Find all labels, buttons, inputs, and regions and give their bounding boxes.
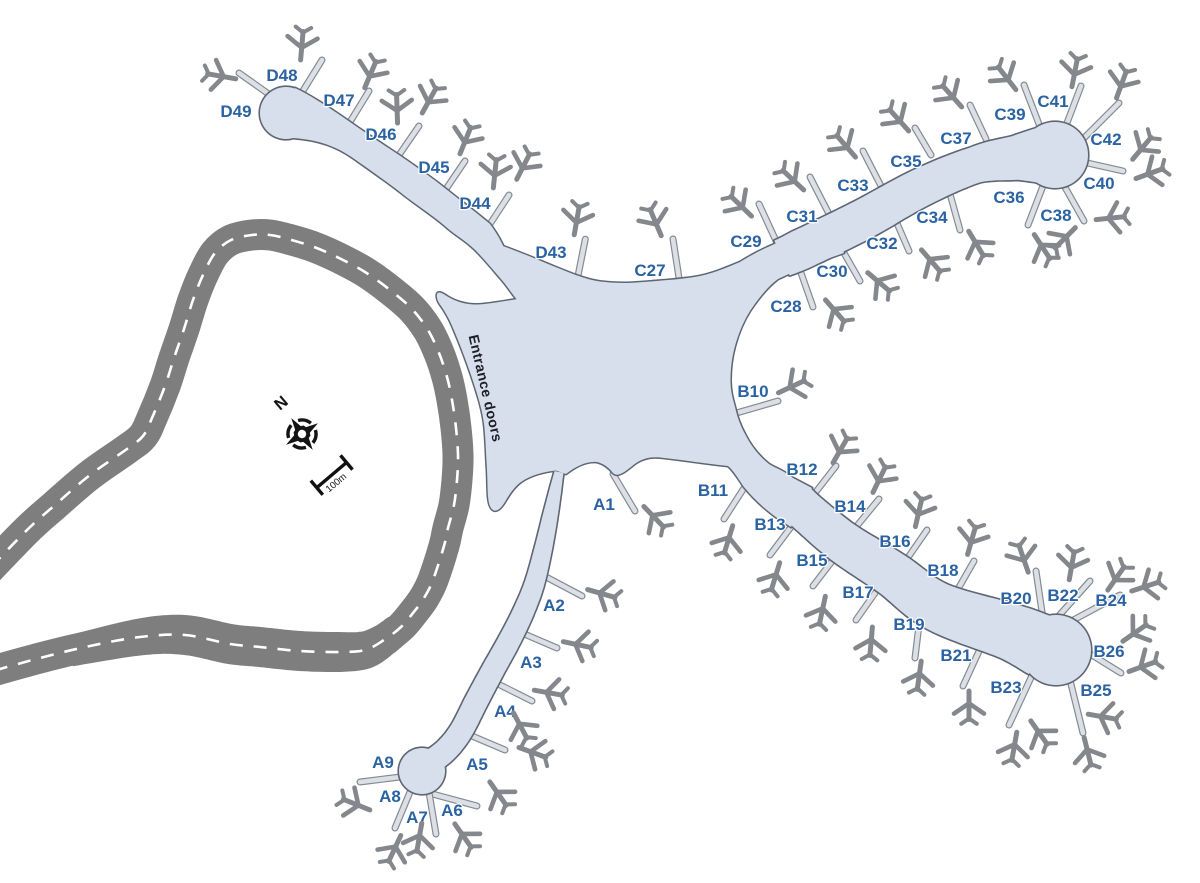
svg-text:D48: D48 (266, 66, 297, 85)
svg-text:B11: B11 (698, 481, 728, 500)
svg-text:D46: D46 (365, 125, 396, 144)
svg-text:B20: B20 (1000, 589, 1031, 608)
svg-text:B24: B24 (1095, 591, 1127, 610)
svg-text:B17: B17 (842, 583, 873, 602)
svg-text:C32: C32 (866, 234, 897, 253)
svg-text:A1: A1 (593, 495, 615, 514)
svg-text:A2: A2 (543, 596, 565, 615)
svg-text:D47: D47 (323, 91, 354, 110)
svg-text:A6: A6 (441, 801, 463, 820)
svg-text:C35: C35 (890, 152, 921, 171)
svg-text:B13: B13 (754, 515, 785, 534)
svg-text:A8: A8 (379, 787, 401, 806)
svg-text:C39: C39 (994, 105, 1025, 124)
svg-text:B22: B22 (1047, 586, 1078, 605)
svg-text:C36: C36 (993, 188, 1024, 207)
svg-text:C31: C31 (786, 207, 817, 226)
svg-text:A5: A5 (466, 755, 488, 774)
svg-text:B14: B14 (834, 497, 866, 516)
svg-text:B12: B12 (786, 460, 817, 479)
svg-text:C42: C42 (1090, 130, 1121, 149)
svg-text:D49: D49 (220, 102, 251, 121)
svg-text:B19: B19 (893, 615, 924, 634)
svg-text:C41: C41 (1037, 92, 1068, 111)
svg-text:B15: B15 (796, 551, 827, 570)
svg-text:B18: B18 (927, 561, 958, 580)
svg-text:B16: B16 (879, 532, 910, 551)
svg-text:B21: B21 (940, 646, 971, 665)
svg-text:A3: A3 (520, 653, 542, 672)
svg-text:C37: C37 (940, 129, 971, 148)
svg-text:C27: C27 (634, 261, 665, 280)
svg-text:B25: B25 (1080, 681, 1111, 700)
svg-text:B10: B10 (737, 382, 768, 401)
svg-text:D45: D45 (418, 158, 449, 177)
svg-text:C40: C40 (1083, 174, 1114, 193)
svg-text:B23: B23 (990, 678, 1021, 697)
svg-text:D44: D44 (459, 194, 491, 213)
svg-text:D43: D43 (535, 243, 566, 262)
svg-text:A7: A7 (406, 808, 428, 827)
svg-text:C34: C34 (916, 208, 948, 227)
svg-text:B26: B26 (1093, 642, 1124, 661)
svg-text:C38: C38 (1040, 206, 1071, 225)
svg-text:C28: C28 (770, 297, 801, 316)
svg-text:C33: C33 (837, 176, 868, 195)
svg-text:A9: A9 (372, 753, 394, 772)
svg-text:C30: C30 (816, 262, 847, 281)
svg-text:C29: C29 (730, 232, 761, 251)
